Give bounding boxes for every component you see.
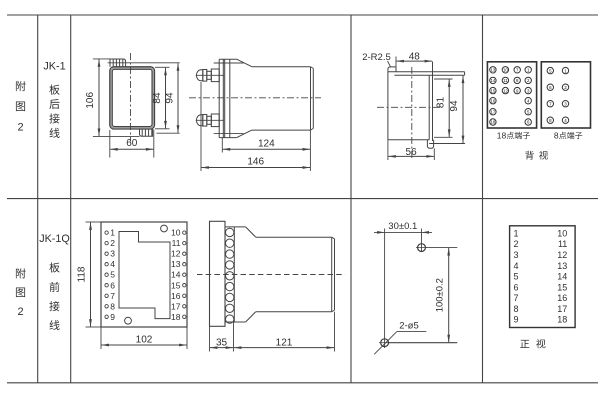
svg-text:15: 15 — [490, 88, 495, 93]
svg-text:146: 146 — [247, 157, 264, 168]
svg-text:30±0.1: 30±0.1 — [388, 221, 417, 232]
svg-text:4: 4 — [514, 261, 519, 271]
svg-text:16: 16 — [171, 291, 181, 301]
svg-text:14: 14 — [490, 78, 495, 83]
svg-text:60: 60 — [126, 138, 138, 149]
svg-text:11: 11 — [558, 239, 567, 249]
svg-text:14: 14 — [557, 272, 567, 282]
svg-text:10: 10 — [171, 228, 181, 238]
svg-text:18: 18 — [171, 312, 181, 322]
svg-text:11: 11 — [503, 78, 508, 83]
svg-text:2-ø5: 2-ø5 — [399, 321, 419, 332]
svg-text:8: 8 — [554, 131, 559, 141]
svg-text:10: 10 — [557, 228, 567, 238]
svg-text:18: 18 — [497, 131, 507, 141]
svg-text:106: 106 — [85, 92, 96, 109]
svg-text:13: 13 — [490, 68, 495, 73]
svg-text:13: 13 — [557, 261, 567, 271]
svg-text:2: 2 — [110, 238, 115, 248]
svg-text:5: 5 — [514, 272, 519, 282]
svg-text:9: 9 — [110, 312, 115, 322]
svg-text:8: 8 — [110, 301, 115, 311]
svg-text:17: 17 — [490, 109, 495, 114]
svg-text:13: 13 — [171, 259, 181, 269]
svg-text:1: 1 — [110, 228, 115, 238]
svg-text:15: 15 — [171, 280, 181, 290]
svg-text:2: 2 — [514, 239, 519, 249]
svg-text:12: 12 — [503, 88, 508, 93]
svg-text:JK-1Q: JK-1Q — [39, 233, 70, 245]
svg-text:JK-1: JK-1 — [43, 60, 65, 72]
svg-text:4: 4 — [110, 259, 115, 269]
svg-text:5: 5 — [110, 270, 115, 280]
svg-text:124: 124 — [258, 138, 275, 149]
svg-text:12: 12 — [557, 250, 567, 260]
svg-text:12: 12 — [171, 249, 181, 259]
svg-text:17: 17 — [171, 301, 181, 311]
svg-text:100±0.2: 100±0.2 — [435, 278, 446, 312]
svg-text:121: 121 — [276, 337, 293, 348]
svg-text:3: 3 — [110, 249, 115, 259]
svg-text:84: 84 — [152, 92, 163, 104]
svg-text:9: 9 — [514, 315, 519, 325]
svg-text:2-R2.5: 2-R2.5 — [362, 52, 391, 63]
svg-text:16: 16 — [557, 293, 567, 303]
svg-text:10: 10 — [503, 68, 508, 73]
svg-text:81: 81 — [436, 97, 447, 109]
svg-text:15: 15 — [557, 282, 567, 292]
svg-text:6: 6 — [514, 282, 519, 292]
svg-text:18: 18 — [490, 120, 495, 125]
svg-text:118: 118 — [77, 266, 88, 282]
svg-text:35: 35 — [216, 337, 228, 348]
svg-text:16: 16 — [490, 98, 495, 103]
svg-text:18: 18 — [557, 315, 567, 325]
svg-text:2: 2 — [17, 121, 23, 133]
svg-text:94: 94 — [164, 92, 175, 104]
svg-text:1: 1 — [514, 228, 519, 238]
svg-text:2: 2 — [17, 306, 23, 318]
svg-text:14: 14 — [171, 270, 181, 280]
svg-text:56: 56 — [406, 147, 418, 158]
svg-text:102: 102 — [136, 335, 153, 346]
svg-text:3: 3 — [514, 250, 519, 260]
svg-text:7: 7 — [514, 293, 519, 303]
svg-text:94: 94 — [449, 100, 460, 112]
svg-text:8: 8 — [514, 304, 519, 314]
svg-text:11: 11 — [172, 238, 181, 248]
svg-text:7: 7 — [110, 291, 115, 301]
svg-text:48: 48 — [409, 52, 421, 63]
svg-text:6: 6 — [110, 280, 115, 290]
svg-text:17: 17 — [557, 304, 567, 314]
